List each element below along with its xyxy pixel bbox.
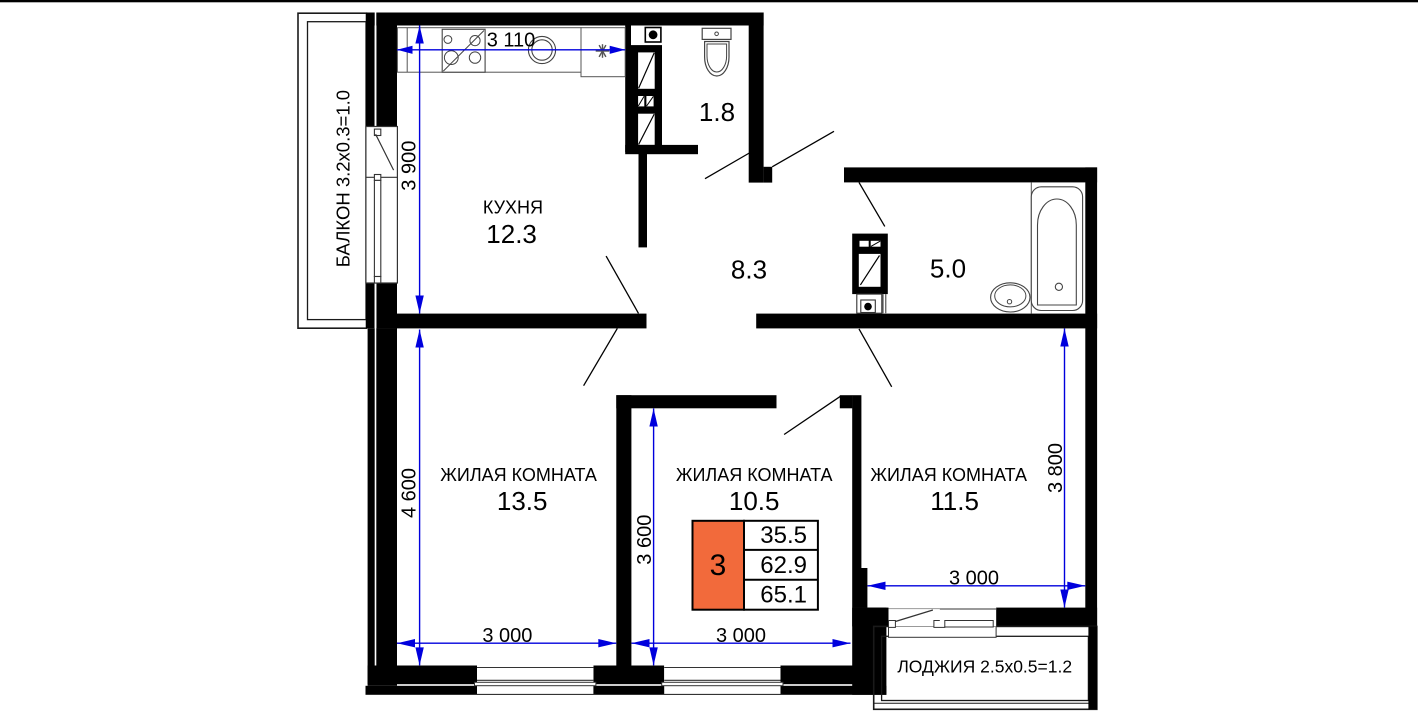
svg-text:62.9: 62.9 (760, 552, 807, 579)
svg-text:3 000: 3 000 (482, 625, 532, 647)
svg-text:ЖИЛАЯ КОМНАТА: ЖИЛАЯ КОМНАТА (440, 465, 597, 485)
svg-text:3 000: 3 000 (949, 567, 999, 589)
svg-text:3 900: 3 900 (399, 141, 421, 191)
svg-text:3 110: 3 110 (487, 30, 536, 52)
svg-text:4 600: 4 600 (399, 468, 421, 518)
svg-text:ЛОДЖИЯ 2.5x0.5=1.2: ЛОДЖИЯ 2.5x0.5=1.2 (897, 657, 1072, 677)
svg-text:3: 3 (710, 549, 727, 582)
svg-text:10.5: 10.5 (729, 486, 780, 516)
svg-text:ЖИЛАЯ КОМНАТА: ЖИЛАЯ КОМНАТА (676, 465, 833, 485)
svg-text:3 000: 3 000 (716, 625, 766, 647)
svg-text:65.1: 65.1 (760, 582, 807, 609)
svg-text:КУХНЯ: КУХНЯ (483, 198, 543, 218)
svg-text:3 600: 3 600 (634, 515, 656, 565)
svg-text:ЖИЛАЯ КОМНАТА: ЖИЛАЯ КОМНАТА (870, 465, 1027, 485)
svg-text:12.3: 12.3 (486, 219, 537, 249)
svg-text:35.5: 35.5 (760, 522, 807, 549)
svg-text:5.0: 5.0 (930, 254, 966, 284)
svg-text:1.8: 1.8 (699, 97, 735, 127)
svg-text:11.5: 11.5 (930, 486, 979, 516)
svg-text:13.5: 13.5 (497, 486, 548, 516)
svg-text:8.3: 8.3 (731, 255, 767, 285)
svg-text:3 800: 3 800 (1045, 443, 1067, 493)
svg-text:БАЛКОН 3.2x0.3=1.0: БАЛКОН 3.2x0.3=1.0 (333, 90, 354, 267)
